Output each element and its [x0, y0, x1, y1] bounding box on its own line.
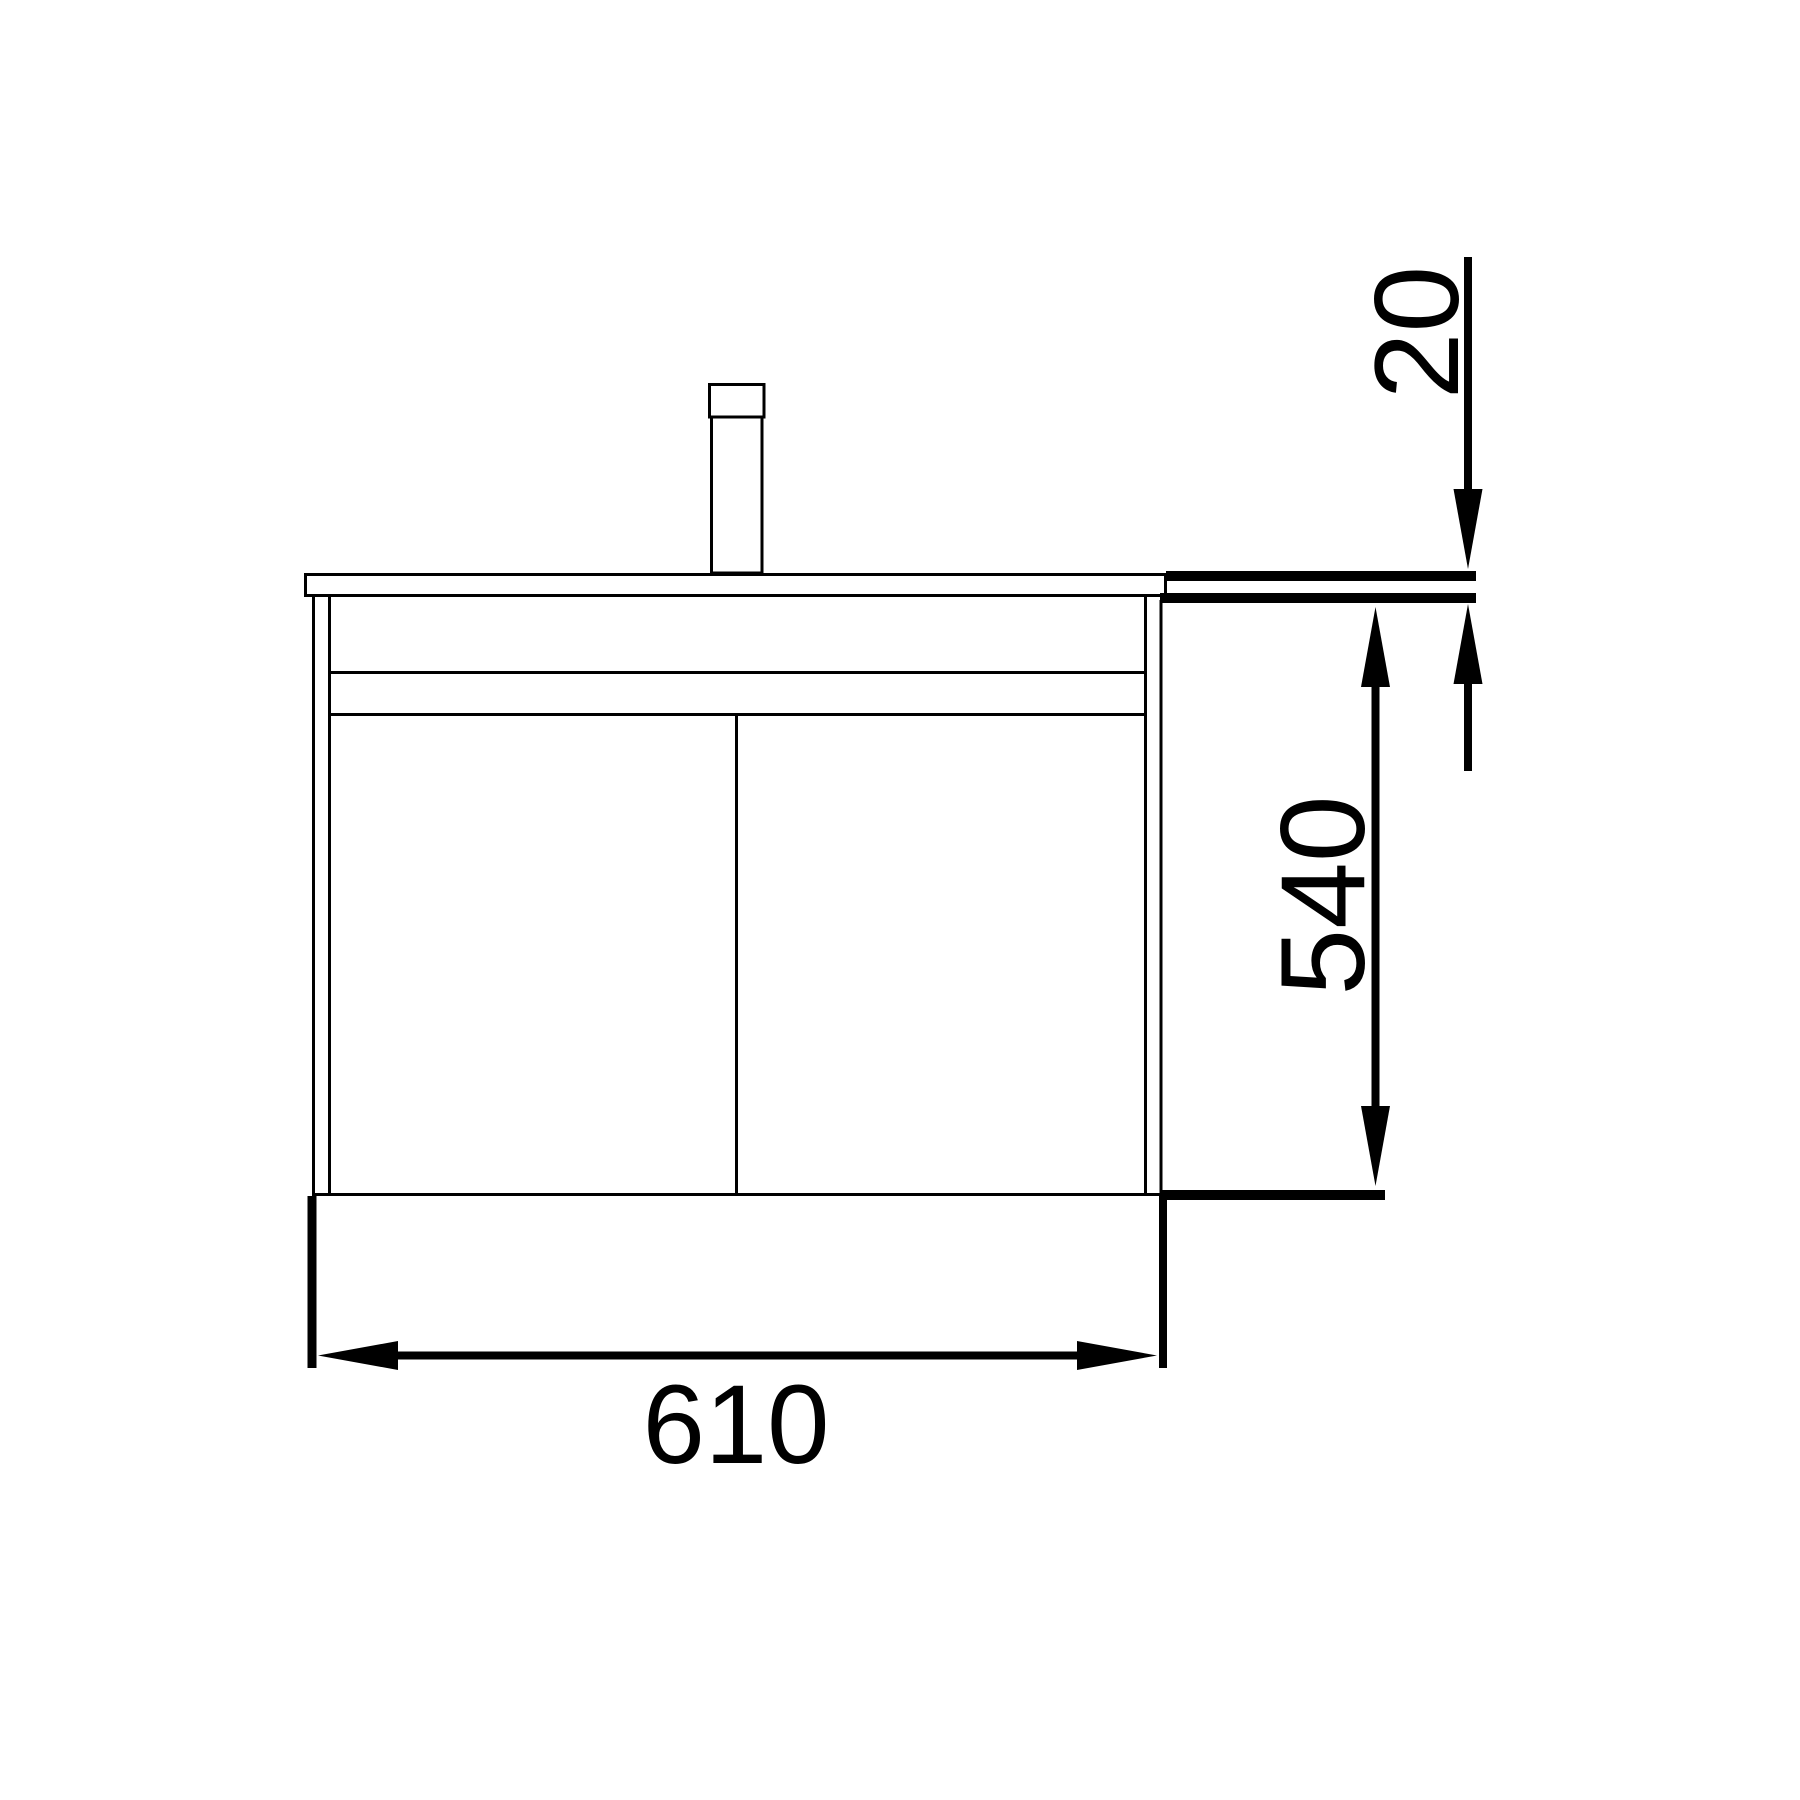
svg-text:540: 540 — [1256, 795, 1390, 995]
svg-text:20: 20 — [1350, 266, 1484, 399]
svg-text:610: 610 — [643, 1362, 830, 1487]
